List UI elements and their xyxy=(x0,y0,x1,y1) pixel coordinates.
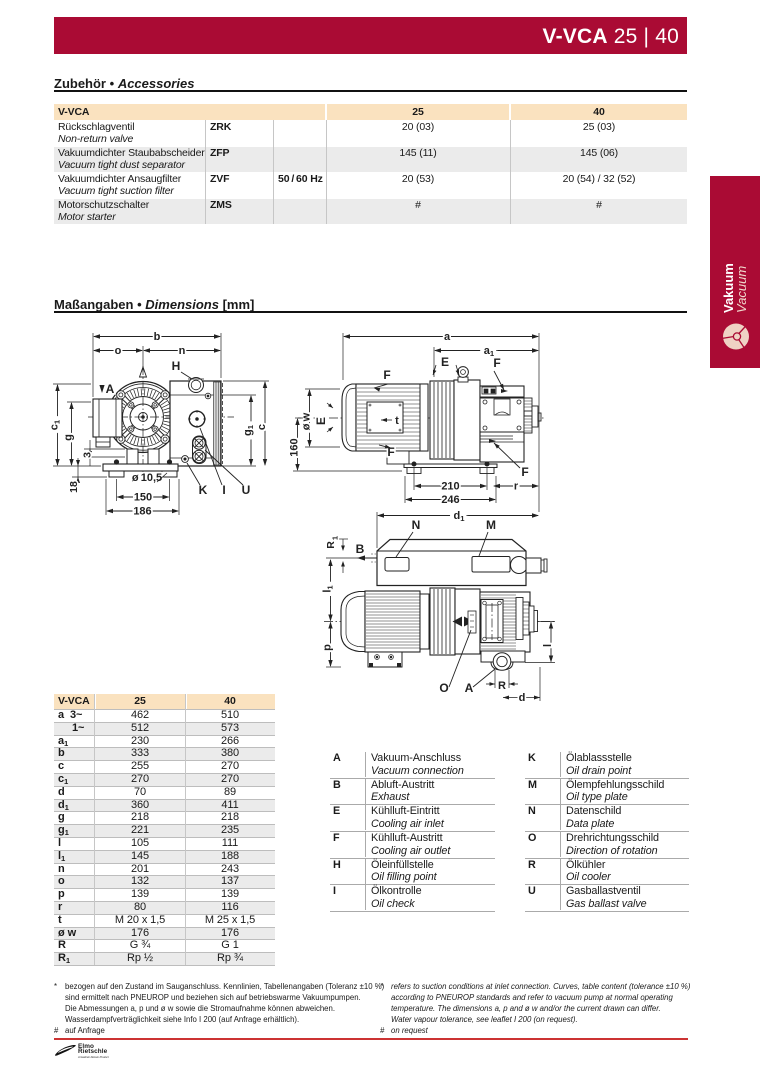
svg-text:150: 150 xyxy=(134,492,152,504)
svg-text:B: B xyxy=(356,542,365,556)
svg-text:H: H xyxy=(172,359,181,373)
svg-text:F: F xyxy=(521,465,528,479)
svg-text:A: A xyxy=(106,382,115,396)
svg-text:n: n xyxy=(179,345,186,357)
svg-text:E: E xyxy=(314,417,328,425)
svg-text:K: K xyxy=(199,483,208,497)
svg-text:a: a xyxy=(444,331,451,343)
svg-text:b: b xyxy=(154,331,161,343)
svg-text:R: R xyxy=(325,541,337,549)
svg-text:R: R xyxy=(498,680,506,692)
svg-text:p: p xyxy=(322,644,334,651)
svg-text:F: F xyxy=(493,356,500,370)
svg-text:210: 210 xyxy=(441,481,459,493)
svg-text:l: l xyxy=(542,644,554,647)
svg-text:F: F xyxy=(383,368,390,382)
svg-text:r: r xyxy=(514,481,519,493)
svg-text:c: c xyxy=(256,424,268,430)
svg-text:M: M xyxy=(486,518,496,532)
svg-text:18: 18 xyxy=(68,481,80,493)
svg-text:t: t xyxy=(395,415,399,427)
svg-text:3: 3 xyxy=(82,452,94,458)
svg-text:I: I xyxy=(222,483,225,497)
svg-text:1: 1 xyxy=(331,536,340,540)
svg-text:186: 186 xyxy=(133,506,151,518)
svg-text:o: o xyxy=(115,345,122,357)
svg-text:d: d xyxy=(519,692,526,704)
svg-text:160: 160 xyxy=(289,438,301,456)
svg-text:O: O xyxy=(439,681,448,695)
svg-text:246: 246 xyxy=(441,494,459,506)
svg-text:U: U xyxy=(242,483,251,497)
svg-text:N: N xyxy=(412,518,421,532)
svg-text:g: g xyxy=(63,434,75,441)
svg-text:ø 10,5: ø 10,5 xyxy=(132,472,162,484)
svg-text:A: A xyxy=(465,681,474,695)
svg-text:ø w: ø w xyxy=(301,412,313,430)
svg-text:E: E xyxy=(441,355,449,369)
